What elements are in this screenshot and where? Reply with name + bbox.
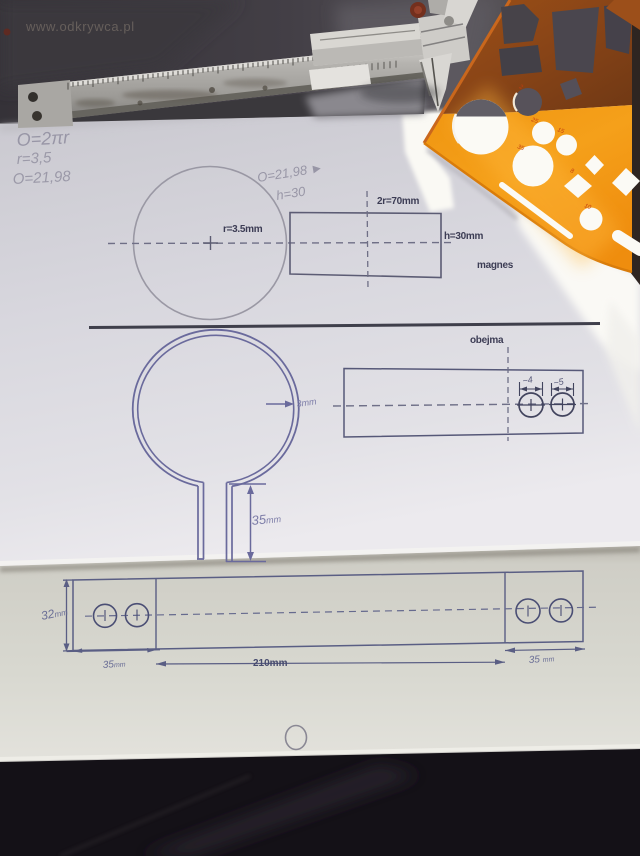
svg-text:obejma: obejma [470,335,504,346]
svg-text:www.odkrywca.pl: www.odkrywca.pl [25,19,135,34]
svg-text:O=2πr: O=2πr [16,127,71,150]
svg-text:h=30mm: h=30mm [444,231,483,242]
svg-text:210mm: 210mm [253,658,288,669]
svg-text:r=3.5mm: r=3.5mm [223,224,263,235]
svg-text:r=3,5: r=3,5 [16,149,52,168]
svg-text:~4: ~4 [522,374,534,386]
svg-text:2r=70mm: 2r=70mm [377,196,420,207]
svg-text:O=21,98: O=21,98 [12,168,71,188]
svg-text:magnes: magnes [477,260,514,271]
